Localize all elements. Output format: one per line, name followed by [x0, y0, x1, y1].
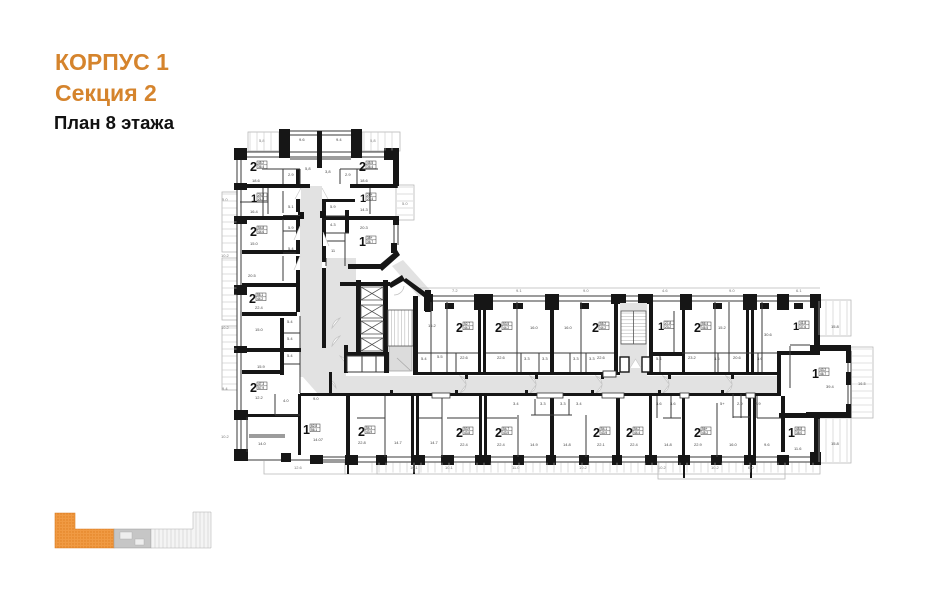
svg-text:15.9: 15.9	[257, 364, 266, 369]
svg-text:10.2: 10.2	[221, 434, 230, 439]
svg-text:5+: 5+	[720, 401, 725, 406]
svg-text:14.8: 14.8	[664, 442, 673, 447]
svg-text:15.2: 15.2	[718, 325, 727, 330]
svg-text:10.2: 10.2	[579, 465, 588, 470]
svg-text:5.4: 5.4	[288, 246, 294, 251]
svg-text:3.6: 3.6	[714, 356, 720, 361]
svg-text:11.6: 11.6	[794, 446, 802, 451]
svg-text:22.9: 22.9	[694, 442, 703, 447]
svg-text:10.2: 10.2	[221, 253, 230, 258]
svg-text:2: 2	[250, 381, 257, 395]
svg-text:План 8 этажа: План 8 этажа	[54, 112, 175, 133]
svg-text:14.07: 14.07	[313, 437, 324, 442]
svg-text:56.1: 56.1	[311, 428, 317, 432]
svg-text:22.6: 22.6	[597, 355, 606, 360]
svg-text:6.0: 6.0	[748, 465, 754, 470]
svg-text:2: 2	[249, 292, 256, 306]
svg-text:36.7: 36.7	[367, 240, 373, 244]
svg-text:14.9: 14.9	[530, 442, 539, 447]
svg-text:2: 2	[592, 321, 599, 335]
svg-text:44.3: 44.3	[464, 326, 470, 330]
svg-text:4.0: 4.0	[283, 398, 289, 403]
svg-text:1: 1	[812, 367, 819, 381]
svg-text:44.2: 44.2	[600, 326, 606, 330]
svg-text:3.3: 3.3	[589, 356, 595, 361]
svg-text:22.4: 22.4	[460, 442, 469, 447]
svg-text:15.8: 15.8	[831, 441, 840, 446]
svg-text:1: 1	[788, 426, 795, 440]
svg-text:43.8: 43.8	[464, 431, 470, 435]
svg-text:43.9: 43.9	[503, 431, 509, 435]
svg-text:18.6: 18.6	[360, 178, 369, 183]
svg-text:3.6: 3.6	[757, 356, 763, 361]
svg-text:9.4: 9.4	[222, 386, 228, 391]
svg-text:1: 1	[360, 193, 366, 205]
svg-text:9.1: 9.1	[516, 288, 522, 293]
svg-text:3.3: 3.3	[542, 356, 548, 361]
svg-text:2: 2	[456, 321, 463, 335]
svg-text:44.2: 44.2	[503, 326, 509, 330]
svg-text:2.9: 2.9	[288, 172, 294, 177]
svg-text:20.6: 20.6	[733, 355, 742, 360]
svg-text:36.4: 36.4	[367, 165, 373, 169]
svg-text:9.6: 9.6	[299, 137, 305, 142]
svg-text:5,8: 5,8	[259, 138, 265, 143]
svg-text:44.4: 44.4	[634, 431, 640, 435]
svg-text:5.4: 5.4	[287, 353, 293, 358]
svg-text:22.4: 22.4	[497, 442, 506, 447]
svg-text:22.6: 22.6	[460, 355, 469, 360]
svg-text:14.0: 14.0	[258, 441, 267, 446]
svg-text:18.6: 18.6	[252, 178, 261, 183]
svg-text:14.7: 14.7	[394, 440, 403, 445]
svg-text:5.9: 5.9	[330, 204, 336, 209]
svg-text:14.7: 14.7	[430, 440, 439, 445]
svg-text:9.0: 9.0	[313, 396, 319, 401]
svg-text:22.8: 22.8	[358, 440, 367, 445]
svg-text:23.4: 23.4	[367, 197, 373, 201]
svg-text:1: 1	[303, 423, 310, 437]
svg-text:2: 2	[358, 425, 365, 439]
svg-text:5.1: 5.1	[288, 204, 294, 209]
svg-text:44.2: 44.2	[257, 297, 263, 301]
svg-text:КОРПУС 1: КОРПУС 1	[55, 49, 169, 75]
svg-text:2: 2	[359, 160, 366, 174]
svg-text:2: 2	[626, 426, 633, 440]
svg-text:9.4: 9.4	[336, 137, 342, 142]
svg-text:12.6: 12.6	[294, 465, 303, 470]
svg-text:21.2: 21.2	[258, 197, 264, 201]
svg-text:14.3: 14.3	[360, 207, 369, 212]
svg-text:9.0: 9.0	[729, 288, 735, 293]
svg-text:45.2: 45.2	[702, 431, 708, 435]
svg-text:16.4: 16.4	[250, 209, 259, 214]
svg-text:2: 2	[250, 225, 257, 239]
svg-text:16.0: 16.0	[564, 325, 573, 330]
svg-text:5.0: 5.0	[402, 201, 408, 206]
svg-text:15.0: 15.0	[250, 241, 259, 246]
svg-text:23.2: 23.2	[665, 325, 671, 329]
svg-text:3.6: 3.6	[670, 401, 676, 406]
svg-text:3.3: 3.3	[540, 401, 546, 406]
svg-text:46.7: 46.7	[820, 372, 826, 376]
svg-text:12.2: 12.2	[255, 395, 264, 400]
svg-text:5.4: 5.4	[656, 356, 662, 361]
svg-text:30.6: 30.6	[764, 332, 773, 337]
svg-text:36.4: 36.4	[258, 165, 264, 169]
svg-text:3.4: 3.4	[576, 401, 582, 406]
svg-text:16.0: 16.0	[729, 442, 738, 447]
svg-text:3.9: 3.9	[755, 401, 761, 406]
svg-text:1: 1	[793, 321, 799, 333]
svg-text:1: 1	[658, 321, 664, 333]
svg-text:1: 1	[251, 193, 257, 205]
svg-text:57.9: 57.9	[258, 386, 264, 390]
svg-text:4.6: 4.6	[662, 288, 668, 293]
svg-text:22.6: 22.6	[497, 355, 506, 360]
svg-text:2: 2	[495, 426, 502, 440]
svg-text:5.4: 5.4	[421, 356, 427, 361]
svg-text:22.4: 22.4	[630, 442, 639, 447]
svg-text:5.5: 5.5	[437, 354, 443, 359]
svg-text:2.9: 2.9	[737, 401, 743, 406]
svg-text:43.9: 43.9	[601, 431, 607, 435]
svg-text:3.3: 3.3	[573, 356, 579, 361]
svg-text:2: 2	[694, 426, 701, 440]
svg-text:2.9: 2.9	[345, 172, 351, 177]
svg-text:3.3: 3.3	[560, 401, 566, 406]
svg-text:2: 2	[495, 321, 502, 335]
svg-text:43.9: 43.9	[366, 430, 372, 434]
svg-text:10.2: 10.2	[221, 325, 230, 330]
svg-text:3.6: 3.6	[656, 401, 662, 406]
svg-text:5,8: 5,8	[305, 166, 311, 171]
svg-text:44.6: 44.6	[258, 230, 264, 234]
svg-text:4.3: 4.3	[330, 222, 336, 227]
svg-text:1: 1	[359, 235, 366, 249]
svg-text:Секция 2: Секция 2	[55, 80, 157, 106]
svg-text:2: 2	[694, 321, 701, 335]
svg-text:16.0: 16.0	[530, 325, 539, 330]
svg-text:22.1: 22.1	[597, 442, 606, 447]
svg-text:37.6: 37.6	[800, 325, 806, 329]
svg-text:38.0: 38.0	[796, 431, 802, 435]
svg-text:16.2: 16.2	[428, 323, 437, 328]
svg-text:3,8: 3,8	[325, 169, 331, 174]
svg-text:5.4: 5.4	[287, 319, 293, 324]
svg-text:14.8: 14.8	[563, 442, 572, 447]
svg-text:2: 2	[456, 426, 463, 440]
svg-text:9.6: 9.6	[764, 442, 770, 447]
svg-text:23.2: 23.2	[688, 355, 697, 360]
svg-text:5.9: 5.9	[288, 225, 294, 230]
svg-text:16.5: 16.5	[858, 381, 867, 386]
svg-text:9.0: 9.0	[583, 288, 589, 293]
svg-text:20.3: 20.3	[360, 225, 369, 230]
svg-text:3.3: 3.3	[524, 356, 530, 361]
svg-text:6.1: 6.1	[796, 288, 802, 293]
svg-text:2: 2	[250, 160, 257, 174]
svg-text:20.5: 20.5	[248, 273, 257, 278]
svg-text:15.0: 15.0	[255, 327, 264, 332]
svg-text:22.4: 22.4	[255, 305, 264, 310]
svg-text:39.4: 39.4	[826, 384, 835, 389]
svg-text:7.2: 7.2	[452, 288, 458, 293]
svg-text:15.8: 15.8	[831, 324, 840, 329]
svg-text:5.4: 5.4	[287, 336, 293, 341]
svg-text:46.5: 46.5	[702, 326, 708, 330]
svg-text:3.4: 3.4	[513, 401, 519, 406]
svg-text:2: 2	[593, 426, 600, 440]
